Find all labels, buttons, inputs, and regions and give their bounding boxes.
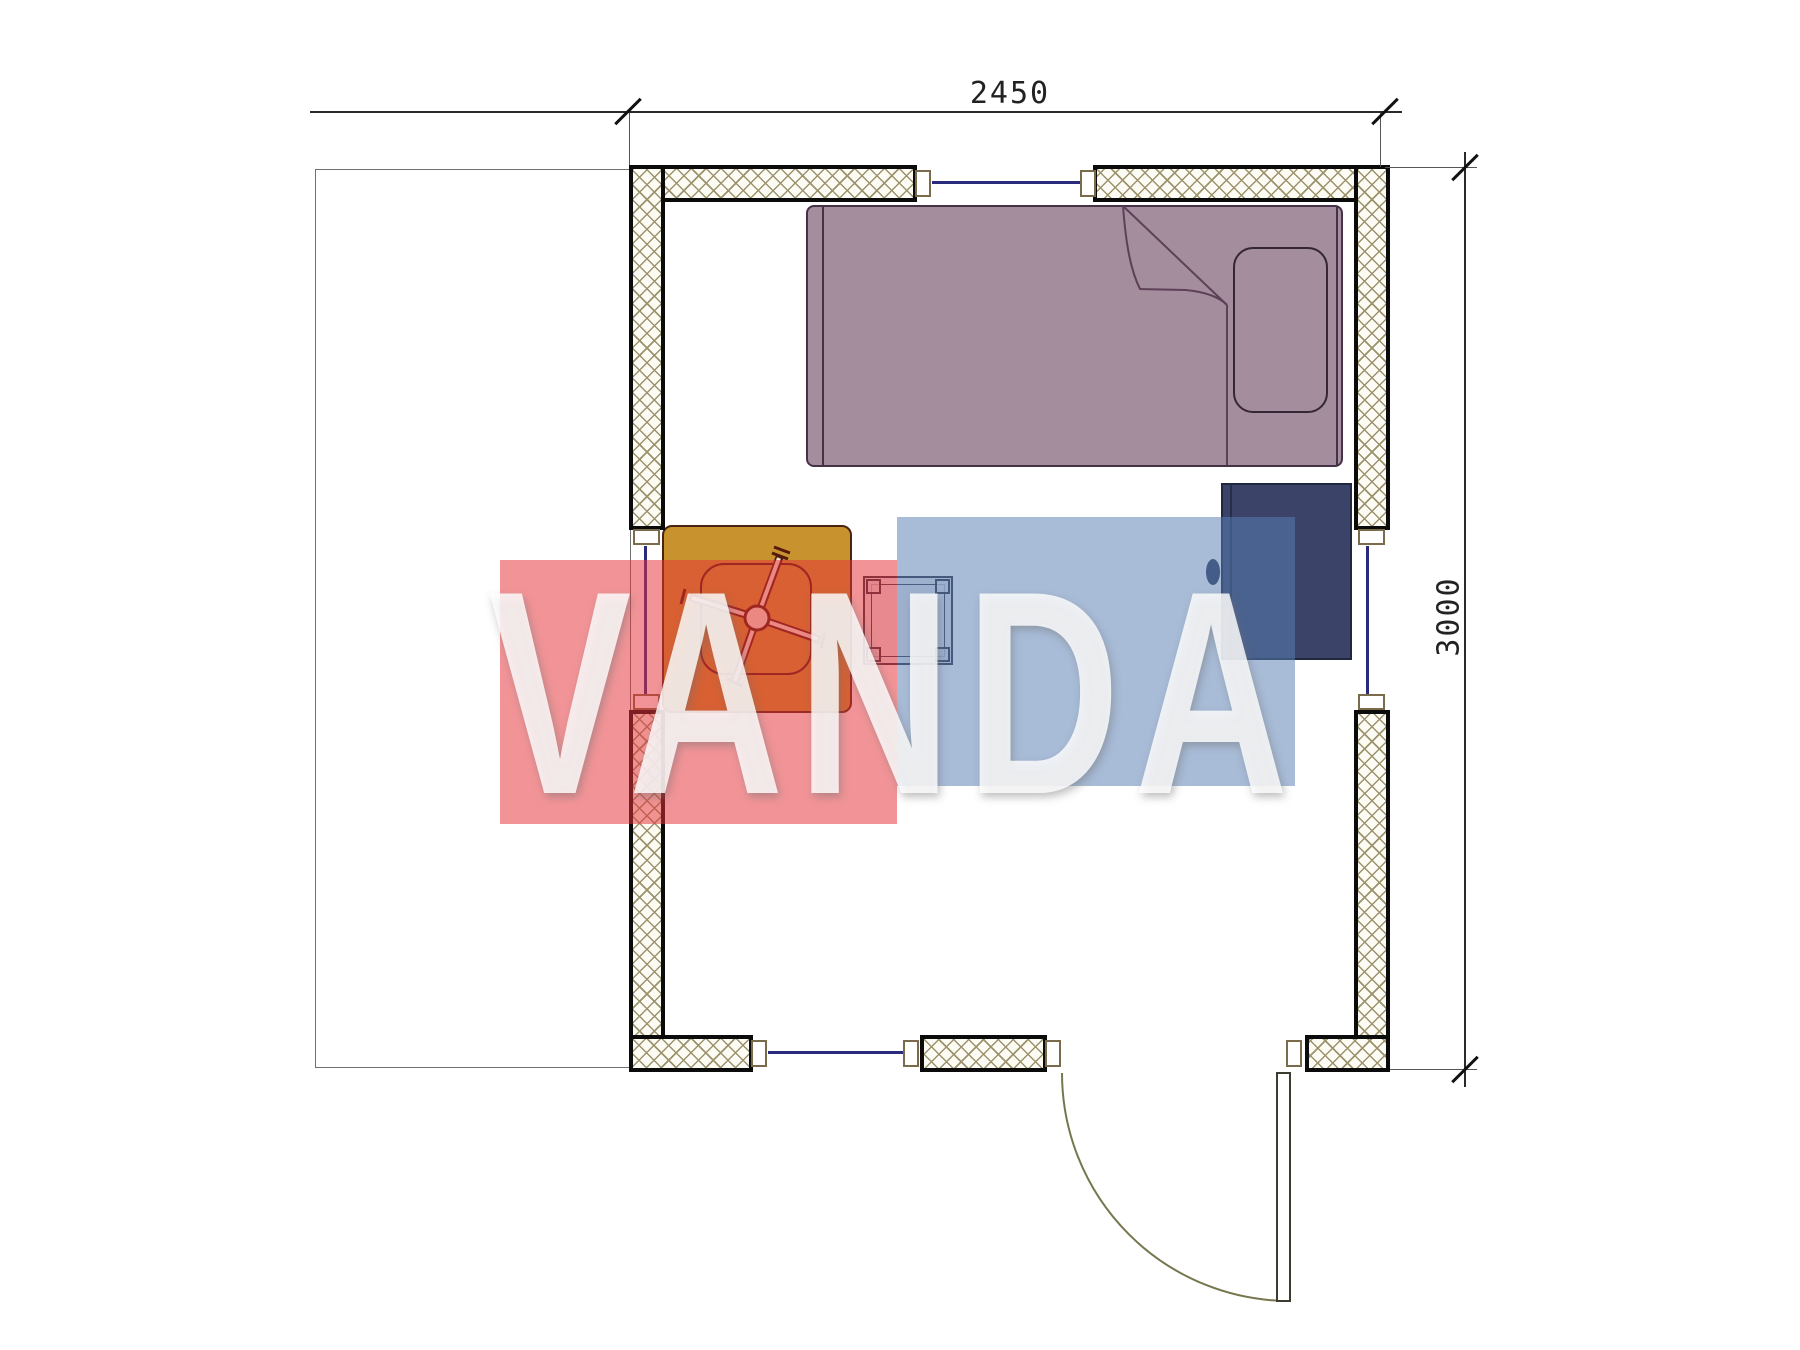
door-jamb (1286, 1040, 1302, 1067)
dimension-height-label: 3000 (1432, 537, 1467, 697)
wall-right-upper (1354, 165, 1390, 530)
window-right-glass (1366, 546, 1369, 694)
watermark-text: VANDA (603, 543, 1188, 843)
wall-top-right (1093, 165, 1390, 202)
door-swing-arc (1062, 1073, 1290, 1301)
door-leaf (1276, 1072, 1291, 1302)
blanket-fold (1123, 206, 1227, 465)
window-bottom-jamb (751, 1040, 767, 1067)
window-top-jamb (1080, 170, 1096, 197)
wall-bottom-right (1305, 1035, 1390, 1072)
window-right-jamb (1358, 694, 1385, 710)
extension-line (1380, 113, 1381, 167)
wall-left-upper (629, 165, 665, 530)
window-bottom-jamb (903, 1040, 919, 1067)
wall-bottom-middle (920, 1035, 1047, 1072)
door-jamb (1045, 1040, 1061, 1067)
extension-line (629, 113, 630, 165)
wall-bottom-left (629, 1035, 753, 1072)
window-bottom-glass (768, 1051, 904, 1054)
floor-plan-canvas: 2450 3000 VANDA (0, 0, 1800, 1350)
dimension-line-horizontal (310, 111, 1402, 113)
window-top-jamb (915, 170, 931, 197)
dimension-width-label: 2450 (930, 76, 1090, 111)
wall-right-lower (1354, 710, 1390, 1072)
window-top-glass (932, 181, 1080, 184)
wall-top-left (629, 165, 917, 202)
window-right-jamb (1358, 529, 1385, 545)
